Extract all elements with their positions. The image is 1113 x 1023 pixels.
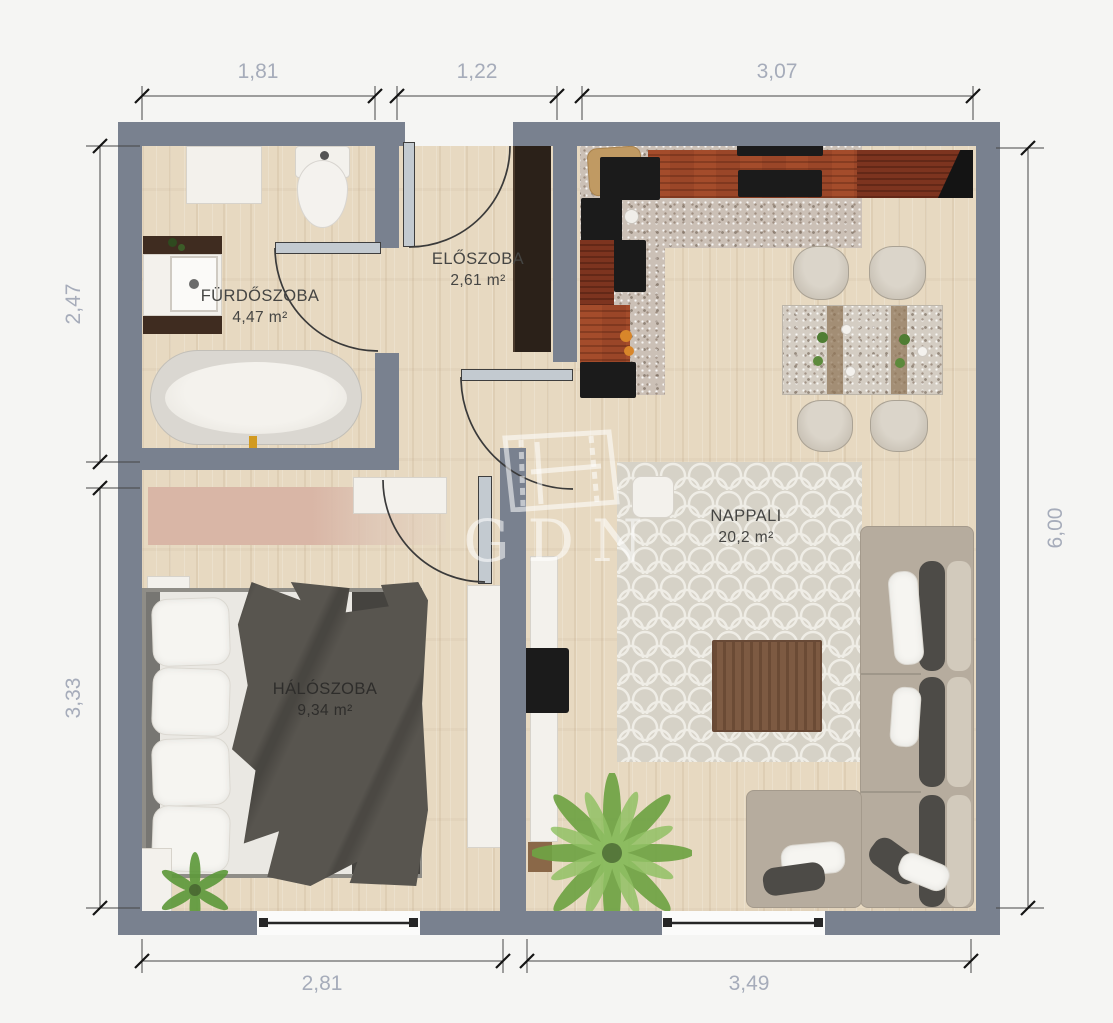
bar-stool-orange	[620, 330, 632, 342]
dim-top-2: 1,22	[437, 60, 517, 84]
bathroom-name: FÜRDŐSZOBA	[160, 285, 360, 307]
bedroom-area: 9,34 m²	[225, 700, 425, 721]
bedroom-window	[257, 911, 420, 935]
coffee-table	[712, 640, 822, 732]
wall-left	[118, 122, 142, 935]
vanity-plant	[168, 238, 177, 247]
sofa-chaise-section	[746, 790, 862, 908]
hallway-name: ELŐSZOBA	[378, 248, 578, 270]
hallway-label: ELŐSZOBA 2,61 m²	[378, 248, 578, 291]
dim-left-2: 3,33	[62, 668, 86, 728]
living-name: NAPPALI	[646, 505, 846, 527]
entry-door-leaf	[403, 142, 415, 247]
sofa-white-pillow	[889, 686, 922, 748]
dining-chair	[869, 246, 926, 300]
wall-bath-bedroom	[118, 448, 399, 470]
table-plant	[817, 332, 828, 343]
floorplan-canvas: 1,81 1,22 3,07 2,47 3,33 6,00 2,81 3,49 …	[0, 0, 1113, 1023]
bathroom-door-leaf	[275, 242, 381, 254]
bathroom-label: FÜRDŐSZOBA 4,47 m²	[160, 285, 360, 328]
bedroom-name: HÁLÓSZOBA	[225, 678, 425, 700]
sofa-seam	[861, 791, 921, 793]
dining-table	[782, 305, 943, 395]
living-window	[662, 911, 825, 935]
dim-left-1: 2,47	[62, 274, 86, 334]
palm-plant	[532, 773, 692, 933]
table-plate	[841, 324, 852, 335]
wall-top-left	[118, 122, 405, 146]
vanity-plant	[178, 244, 185, 251]
wall-top-right	[513, 122, 1000, 146]
wall-bath-divider-upper	[375, 146, 399, 248]
fridge	[581, 198, 622, 246]
counter-shadow-corner	[931, 150, 973, 198]
oven	[614, 240, 646, 292]
sofa-edge-cushion	[947, 561, 971, 671]
bed-pillow	[151, 737, 231, 808]
bathtub	[150, 350, 362, 445]
bedroom-label: HÁLÓSZOBA 9,34 m²	[225, 678, 425, 721]
washing-machine	[186, 146, 262, 204]
sofa-edge-cushion	[947, 795, 971, 907]
dining-chair	[797, 400, 853, 452]
kitchen-corner-unit	[600, 157, 660, 200]
sofa-dark-pillow	[761, 861, 826, 897]
bed-pillow	[151, 667, 231, 738]
dim-top-1: 1,81	[218, 60, 298, 84]
bathtub-inner	[165, 362, 347, 434]
table-plant	[899, 334, 910, 345]
living-label: NAPPALI 20,2 m²	[646, 505, 846, 548]
dining-chair	[793, 246, 849, 300]
table-runner	[891, 306, 907, 394]
wall-right	[976, 122, 1000, 935]
dining-chair	[870, 400, 928, 452]
sofa-seam	[861, 673, 921, 675]
bedroom-door-leaf	[478, 476, 492, 584]
hallway-area: 2,61 m²	[378, 270, 578, 291]
bedroom-shelf	[353, 477, 447, 514]
kitchen-sink	[624, 209, 639, 224]
wall-bottom	[118, 911, 1000, 935]
table-plant	[895, 358, 905, 368]
bed-pillow	[151, 597, 231, 668]
dim-top-3: 3,07	[737, 60, 817, 84]
bathroom-area: 4,47 m²	[160, 307, 360, 328]
table-plate	[845, 366, 856, 377]
dim-right-1: 6,00	[1044, 498, 1068, 558]
bedroom-dresser	[467, 585, 503, 848]
sofa-back-cushion	[919, 677, 945, 787]
kitchen-counter-top-right	[857, 150, 973, 198]
kitchen-cabinet-left	[580, 240, 614, 312]
tv	[522, 648, 569, 713]
table-plate	[917, 346, 928, 357]
living-area: 20,2 m²	[646, 527, 846, 548]
dim-bottom-1: 2,81	[282, 972, 362, 996]
table-plant	[813, 356, 823, 366]
table-runner	[827, 306, 843, 394]
bar-stool-orange-2	[624, 346, 634, 356]
toilet-button	[320, 151, 329, 160]
sofa-edge-cushion	[947, 677, 971, 787]
cooktop	[738, 170, 822, 197]
dishwasher	[580, 362, 636, 398]
wall-center-bottom	[500, 448, 526, 935]
living-door-leaf	[461, 369, 573, 381]
dim-bottom-2: 3,49	[709, 972, 789, 996]
